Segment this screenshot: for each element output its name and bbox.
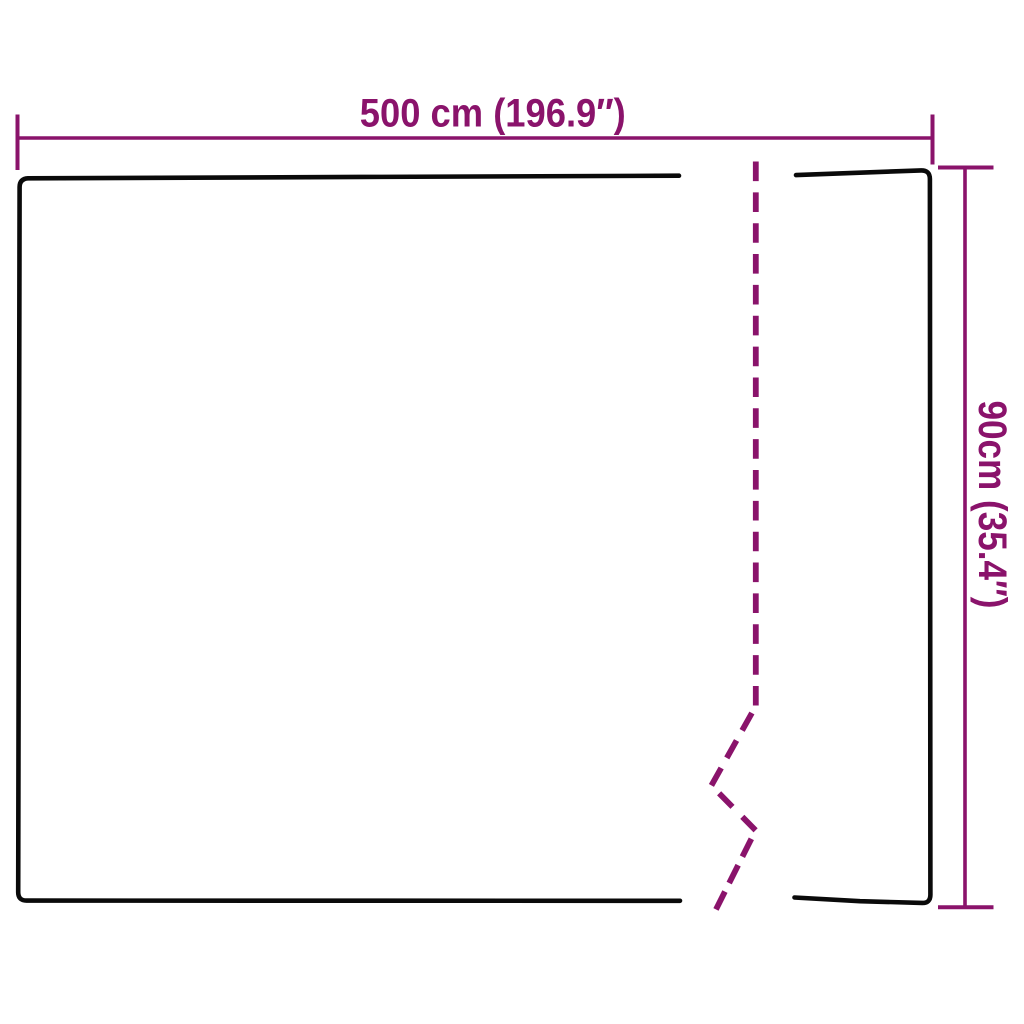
svg-text:90cm (35.4″): 90cm (35.4″) [970, 401, 1014, 609]
svg-text:500 cm (196.9″): 500 cm (196.9″) [360, 92, 626, 136]
